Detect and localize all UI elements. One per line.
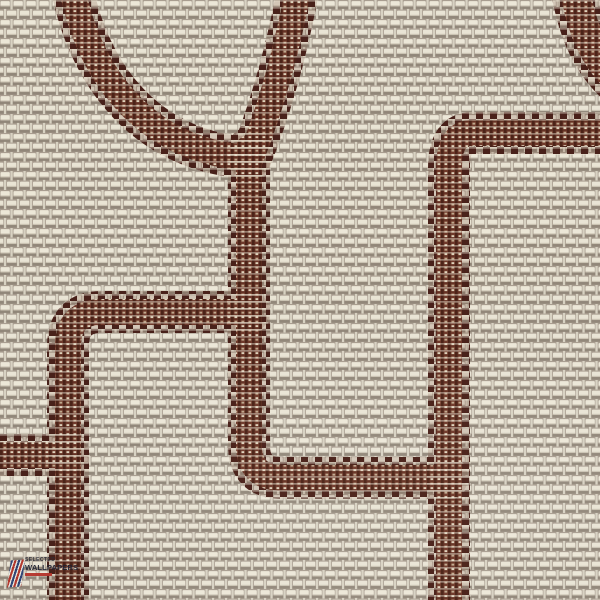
logo-wallpapers-text: WALLPAPERS <box>25 564 78 572</box>
wallpaper-swatch-photo: SELECTED WALLPAPERS <box>0 0 600 600</box>
striped-flag-icon <box>7 560 25 588</box>
logo-tagline-bar <box>25 573 52 576</box>
brand-logo: SELECTED WALLPAPERS <box>9 558 79 587</box>
brand-logo-text: SELECTED WALLPAPERS <box>25 558 78 576</box>
wallpaper-texture <box>0 0 600 600</box>
